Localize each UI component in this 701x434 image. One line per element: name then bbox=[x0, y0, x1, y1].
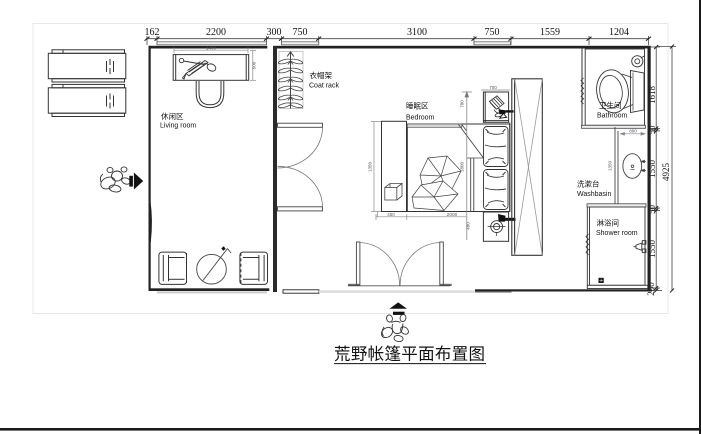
svg-text:1400: 1400 bbox=[206, 46, 217, 51]
svg-text:1800: 1800 bbox=[460, 161, 465, 172]
svg-text:Living room: Living room bbox=[160, 123, 196, 130]
svg-text:700: 700 bbox=[489, 85, 497, 90]
svg-text:衣帽架: 衣帽架 bbox=[310, 70, 333, 80]
svg-text:洗漱台: 洗漱台 bbox=[577, 179, 600, 189]
svg-text:Shower room: Shower room bbox=[596, 230, 638, 237]
svg-text:300: 300 bbox=[267, 27, 282, 38]
svg-text:450: 450 bbox=[387, 212, 395, 217]
svg-text:2200: 2200 bbox=[206, 27, 226, 38]
svg-text:500: 500 bbox=[251, 61, 256, 69]
svg-text:1204: 1204 bbox=[609, 27, 629, 38]
svg-text:4925: 4925 bbox=[661, 163, 671, 182]
svg-text:1350: 1350 bbox=[368, 161, 373, 172]
svg-text:750: 750 bbox=[293, 27, 308, 38]
svg-text:480: 480 bbox=[466, 222, 471, 230]
svg-text:休闲区: 休闲区 bbox=[161, 111, 184, 121]
svg-text:荒野帐篷平面布置图: 荒野帐篷平面布置图 bbox=[334, 345, 485, 364]
svg-text:780: 780 bbox=[460, 100, 465, 108]
svg-text:162: 162 bbox=[145, 27, 160, 38]
svg-text:淋浴间: 淋浴间 bbox=[597, 218, 620, 228]
svg-text:卫生间: 卫生间 bbox=[599, 100, 622, 110]
svg-text:750: 750 bbox=[485, 27, 500, 38]
svg-text:Coat rack: Coat rack bbox=[309, 83, 339, 90]
svg-text:2000: 2000 bbox=[447, 212, 458, 218]
svg-text:Bathroom: Bathroom bbox=[597, 113, 628, 120]
svg-text:1559: 1559 bbox=[540, 27, 560, 38]
svg-text:睡眠区: 睡眠区 bbox=[406, 102, 429, 111]
svg-text:1350: 1350 bbox=[608, 160, 613, 171]
svg-text:3100: 3100 bbox=[407, 27, 427, 38]
svg-text:Bedroom: Bedroom bbox=[406, 115, 435, 122]
svg-text:Washbasin: Washbasin bbox=[577, 191, 611, 198]
svg-text:800: 800 bbox=[629, 129, 637, 134]
